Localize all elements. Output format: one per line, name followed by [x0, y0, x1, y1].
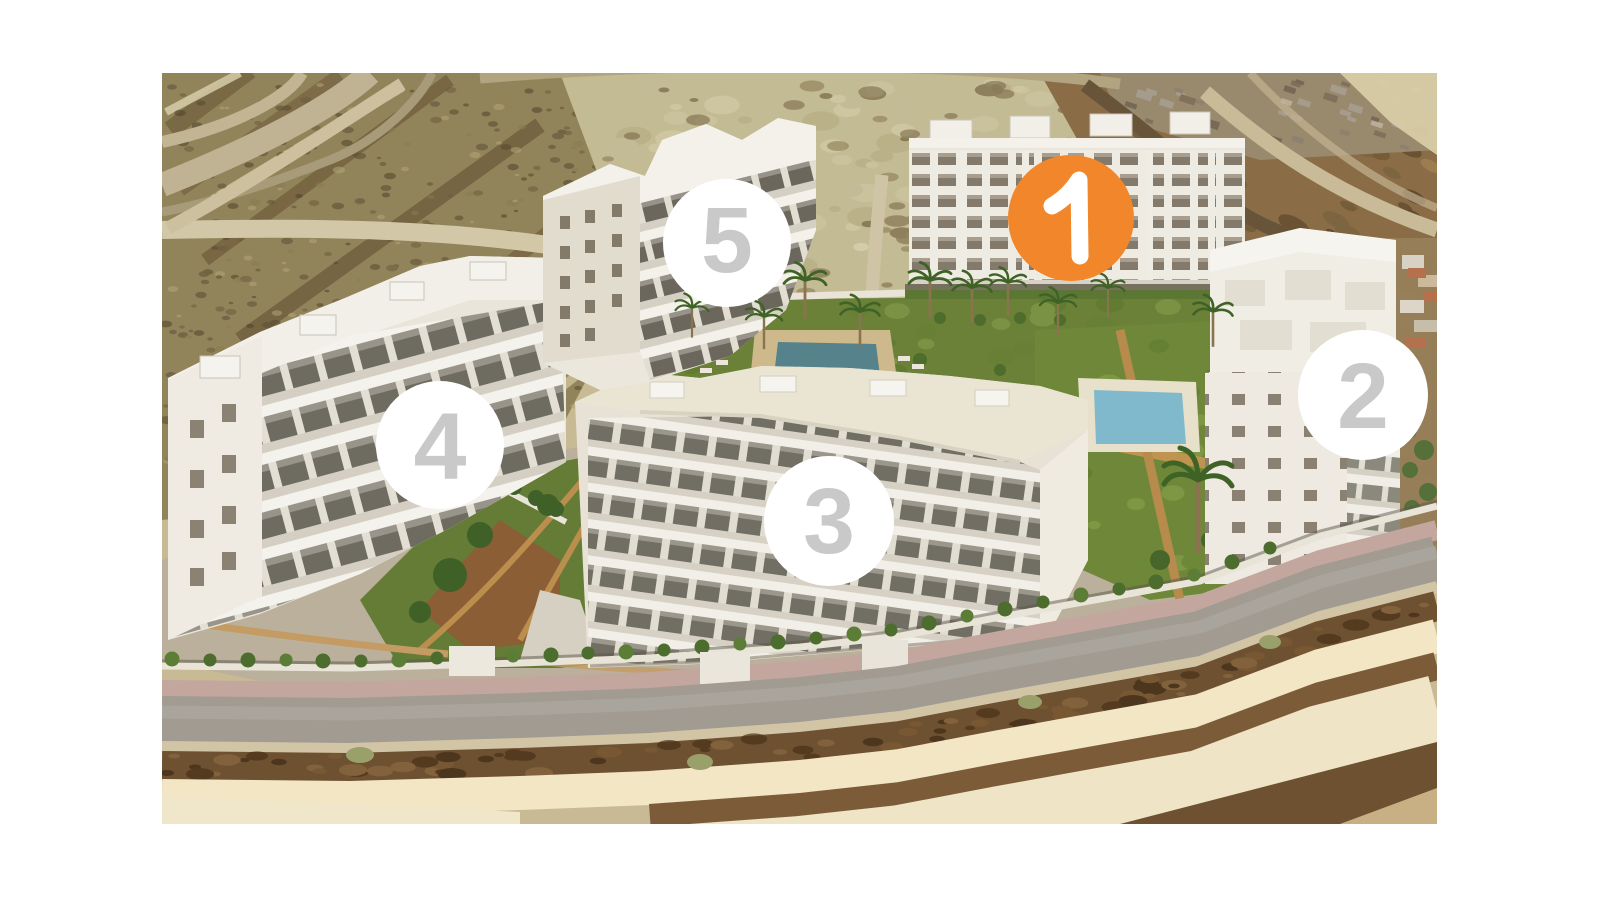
svg-text:4: 4: [414, 394, 467, 500]
svg-text:5: 5: [701, 188, 753, 292]
svg-text:2: 2: [1337, 344, 1389, 448]
svg-text:3: 3: [803, 469, 855, 573]
